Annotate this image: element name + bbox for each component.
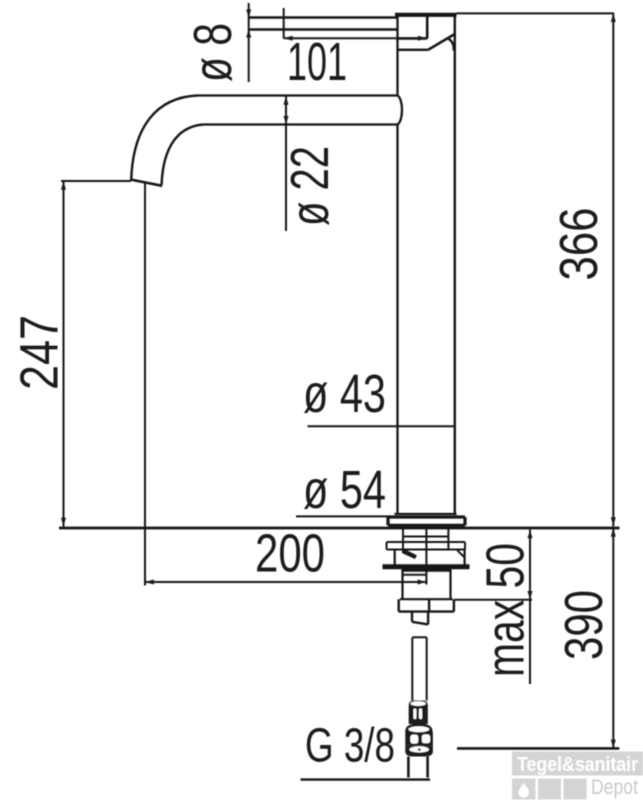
svg-text:ø 8: ø 8 — [183, 23, 243, 82]
svg-text:Tegel&sanitair: Tegel&sanitair — [517, 754, 638, 776]
svg-text:ø 43: ø 43 — [303, 364, 386, 424]
svg-text:247: 247 — [10, 315, 70, 390]
svg-text:Depot: Depot — [591, 776, 638, 799]
svg-text:max 50: max 50 — [476, 543, 536, 677]
svg-text:101: 101 — [287, 32, 347, 92]
svg-text:ø 22: ø 22 — [280, 146, 340, 226]
svg-text:ø 54: ø 54 — [303, 460, 386, 520]
svg-text:366: 366 — [549, 208, 609, 281]
svg-text:390: 390 — [554, 590, 614, 660]
svg-text:G 3/8: G 3/8 — [305, 720, 395, 773]
svg-text:200: 200 — [255, 524, 325, 584]
